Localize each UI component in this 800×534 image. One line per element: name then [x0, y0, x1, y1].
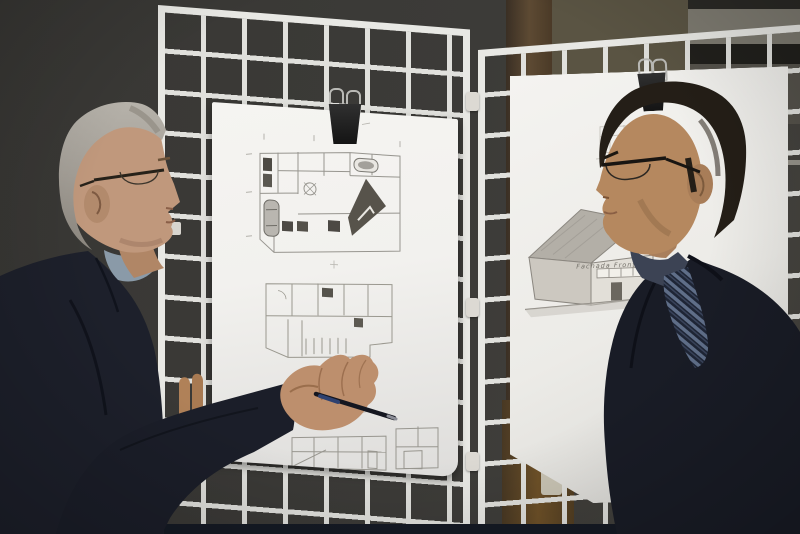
ear-left: [84, 185, 110, 223]
man-left: [0, 102, 396, 534]
photo-scene: Fachada Frontal: [0, 0, 800, 534]
people-figures: [0, 0, 800, 534]
gesturing-hand: [280, 355, 378, 431]
man-right: [596, 81, 800, 534]
